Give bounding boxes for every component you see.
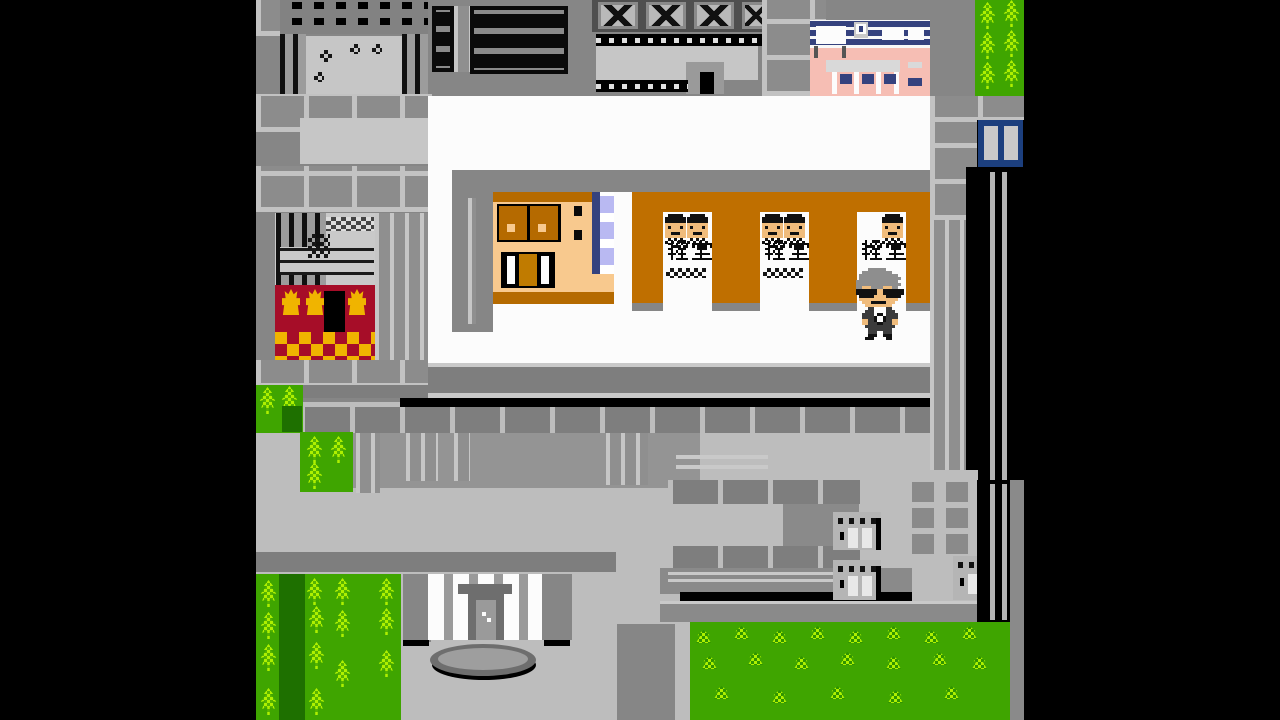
side-table [908,62,922,68]
tl-corner-tiles [256,0,282,36]
entrance-shadow-right [544,640,570,646]
br-band-edge [660,601,1024,604]
kiosk-2-door-1 [848,576,858,596]
kiosk-1-vents [838,518,876,524]
crate-2 [646,2,686,29]
table-leg-3 [876,72,881,94]
door-sparkle-1 [482,612,486,616]
band-grey [452,170,930,192]
white-alley [614,192,632,363]
wall-board-3 [908,28,924,40]
kiosk-1-shadow [876,518,881,550]
crowd-sprite-4 [314,72,324,82]
grey-column-stripes [468,198,476,324]
shelf-item-1 [574,206,582,216]
shelf-item-2 [574,230,582,240]
facade-left-windows [280,34,306,94]
stool-1 [840,74,852,84]
train-panel-2 [1004,126,1018,160]
left-sidewalk-row-3 [256,360,430,388]
tl-plaza [300,118,428,164]
film-strip-top [596,34,770,46]
br-window-5 [912,534,934,554]
br-window-4 [946,508,968,528]
sign-3-char-2 [886,240,906,260]
kiosk-2-door-2 [862,576,872,596]
kiosk-2-vents [838,566,876,572]
player-character [856,268,904,340]
entrance-wall-right [542,574,572,640]
lower-grey-band [256,552,616,572]
right-edge-column [1010,480,1024,720]
shop-unit-2 [470,6,568,74]
rail-1 [990,172,995,480]
kiosk-3-mark [960,578,964,586]
sign-2-char-2 [789,240,809,260]
cabinet-drawer-2 [538,224,546,232]
crate-1 [598,2,638,29]
sign-2-char-1 [765,240,785,260]
theater-door [324,291,345,332]
table-leg-2 [854,72,859,94]
kiosk-1-door-1 [848,528,858,548]
kiosk-1-door-2 [862,528,872,548]
tan-door [519,254,537,286]
roof-stripes-4 [606,433,648,485]
br-tile-band-1 [668,480,860,504]
tan-door-slit-2 [541,256,549,284]
game-screen [0,0,1280,720]
theater-checker-apron [275,332,376,363]
street-line-1 [676,455,768,459]
queue-noise-2 [763,268,803,278]
roof-stripes-3 [454,433,470,481]
door-sparkle-2 [487,618,491,622]
br-grey-band-4 [660,601,1024,622]
road-band-left [300,385,430,398]
road-band [428,367,930,393]
grey-block [617,624,675,720]
crowd-sprite-2 [350,44,360,54]
rail-2 [1002,172,1007,480]
facade-right-windows [402,34,428,94]
wall-post-2 [842,46,846,58]
queue-noise-1 [666,268,706,278]
roof-stripes-1 [356,433,380,493]
table-leg-1 [832,72,837,94]
br-window-2 [946,482,968,502]
street-line-2 [676,465,768,469]
sign-1-char-1 [668,240,688,260]
cabinet-1 [499,206,527,240]
crate-3 [694,2,734,29]
park-edge-wall [403,574,431,642]
shop-gap-wall [454,6,470,72]
lavender-curtain [600,192,614,274]
yard [596,46,758,80]
letterbox-right [1024,0,1280,720]
br-rail-1 [990,484,995,620]
park-path [279,574,305,720]
navy-strip [592,192,600,274]
road-tile-row [300,407,930,433]
left-side-wall [375,213,430,363]
wall-board-2 [882,28,904,40]
yard-kiosk-door [700,72,714,94]
tl-sidewalk-row-2 [256,166,432,212]
crowd-sprite-3 [372,44,382,54]
br-rail-2 [1002,484,1007,620]
game-viewport[interactable] [256,0,1024,720]
park-patch-2 [300,432,353,492]
stool-3 [884,74,896,84]
train-panel-1 [984,126,998,160]
park-edge-shadow [403,640,429,646]
kiosk-2-shadow [876,566,881,600]
br-window-1 [912,482,934,502]
kiosk-2-mark [840,580,844,588]
clock-mark [859,26,863,32]
sign-3-char-1 [862,240,882,260]
tan-door-slit-1 [507,256,515,284]
entrance-glass-door [476,600,496,640]
crowd-sprite-1 [320,50,332,62]
shop-unit-1 [432,6,454,72]
right-sidewalk-row [930,96,1024,122]
park [256,574,401,720]
whiteboard [816,26,846,44]
sign-1-char-2 [692,240,712,260]
right-striped-wall [930,220,966,480]
studio-table [826,60,900,72]
roof-stripes-2 [406,433,438,481]
road-black-line [400,398,930,407]
br-tile-band-2 [668,546,860,568]
cabinet-2 [530,206,558,240]
br-window-3 [912,508,934,528]
cabinet-drawer-1 [507,224,515,232]
left-building-sprite [308,234,330,258]
kiosk-1-mark [840,532,844,540]
fountain-inner [438,648,528,670]
wall-post-1 [814,46,818,58]
letterbox-left [0,0,256,720]
br-window-6 [946,534,968,554]
tan-base-band [493,292,614,304]
film-strip-bottom [596,80,688,92]
shrine-block [282,406,302,432]
stool-2 [862,74,874,84]
dark-building-windows [280,0,428,34]
side-stool [908,78,922,86]
left-building-sill [326,217,374,231]
train-track [966,167,1024,480]
